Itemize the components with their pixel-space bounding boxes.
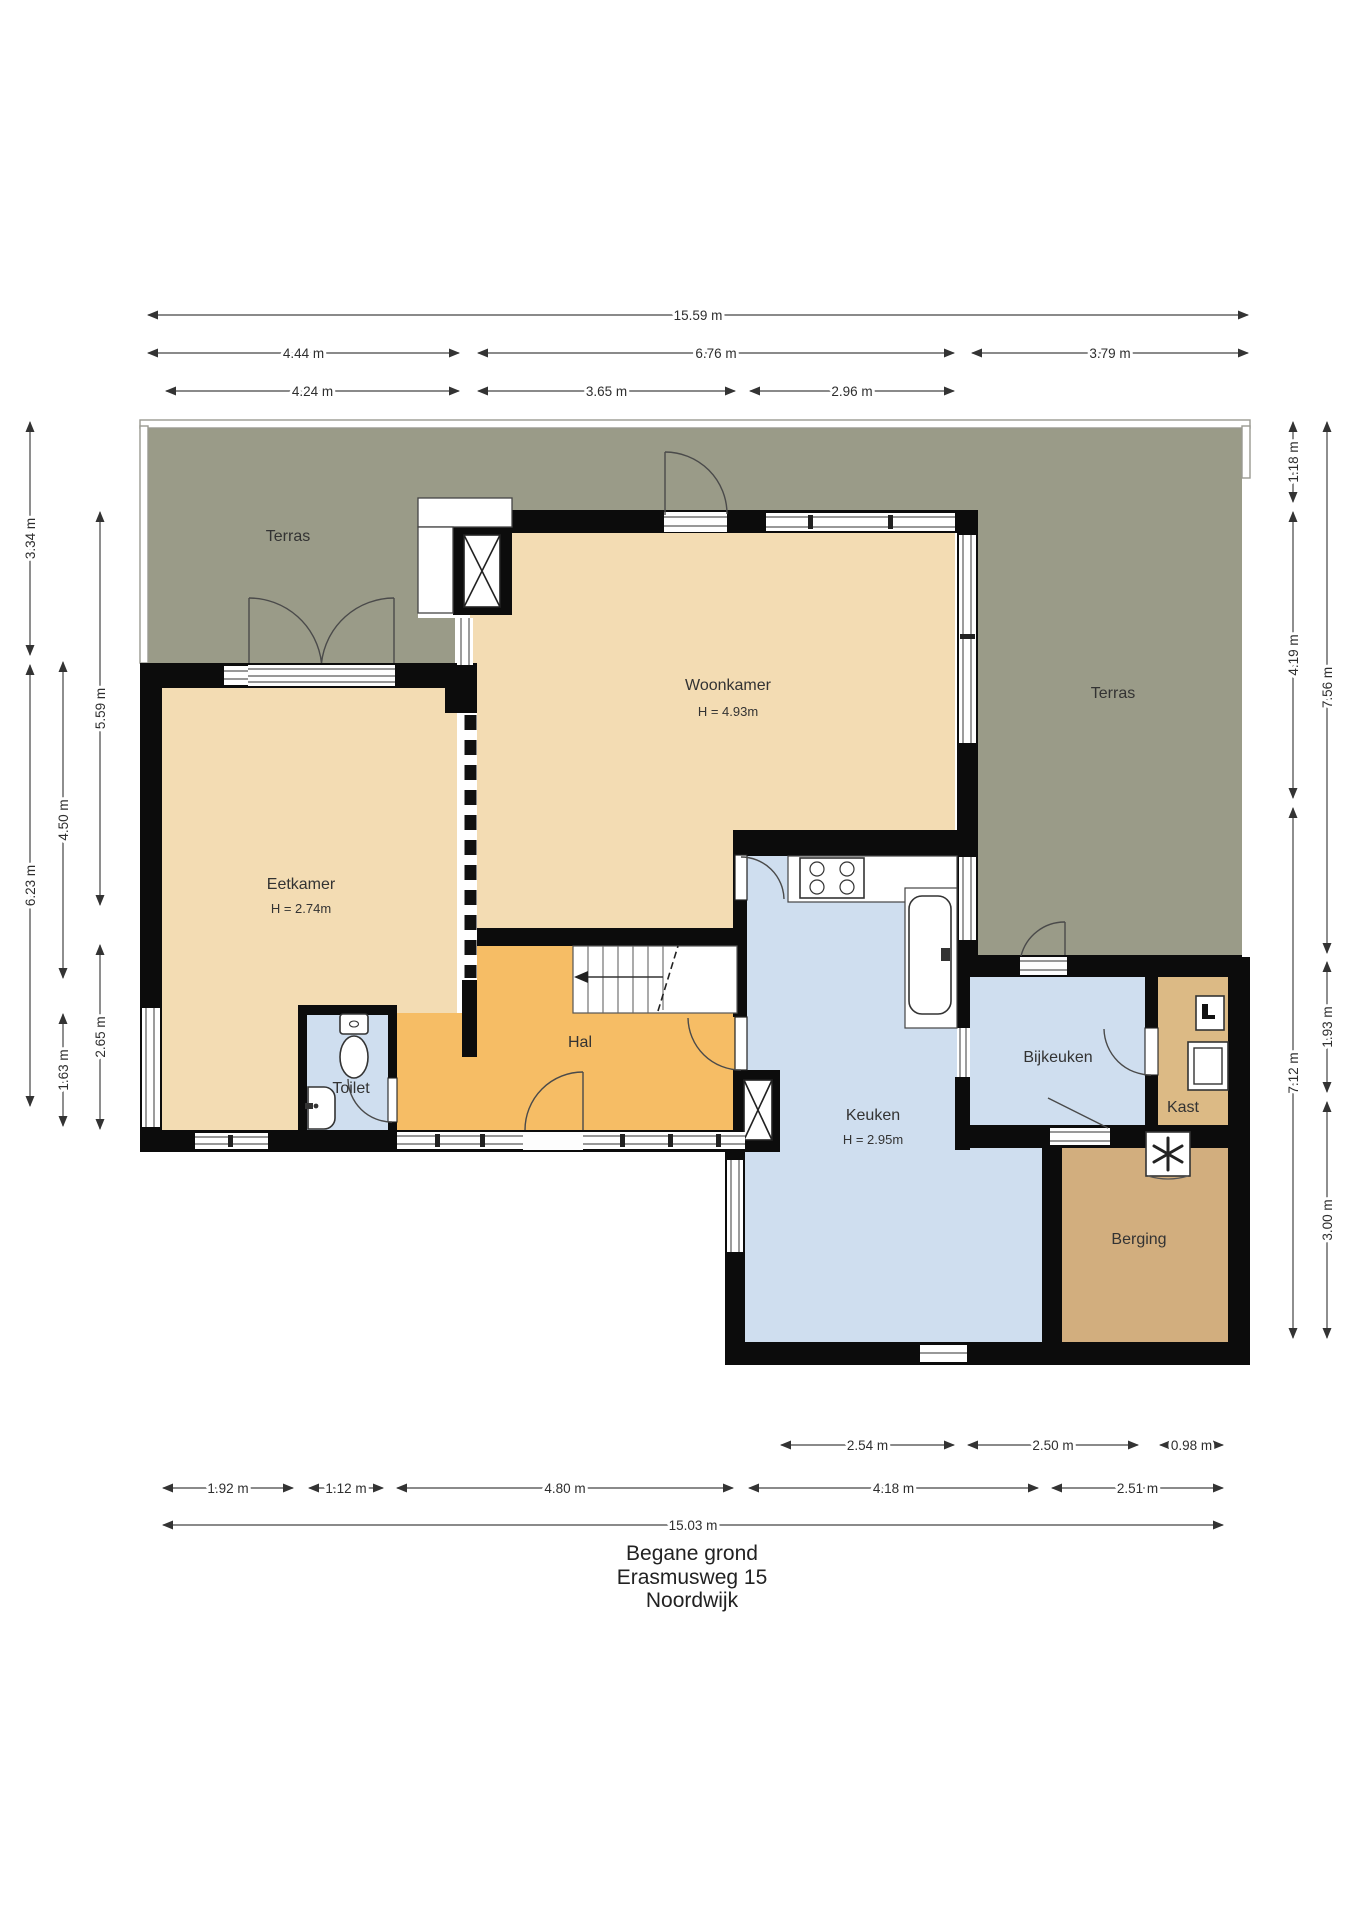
floorplan-page: { "title": { "line1": "Begane grond", "l… bbox=[0, 0, 1358, 1920]
stairs bbox=[573, 946, 737, 1013]
dimension-label: 1.18 m bbox=[1286, 441, 1301, 482]
chimney-block bbox=[418, 498, 512, 613]
dimension-label: 4.44 m bbox=[283, 346, 324, 361]
dimension-label: 2.96 m bbox=[831, 384, 872, 399]
dimension-label: 7.12 m bbox=[1286, 1052, 1301, 1093]
terrace-boundary-top bbox=[140, 420, 1250, 428]
room-label-hal: Hal bbox=[568, 1034, 592, 1051]
room-label-toilet: Toilet bbox=[332, 1080, 370, 1097]
toilet-bowl bbox=[340, 1036, 368, 1078]
room-label-berging: Berging bbox=[1111, 1231, 1166, 1248]
dimension-label: 15.59 m bbox=[674, 308, 723, 323]
terrace-boundary-right bbox=[1242, 426, 1250, 478]
dimension-label: 4.50 m bbox=[56, 799, 71, 840]
dimension-label: 2.50 m bbox=[1032, 1438, 1073, 1453]
plan-title: Begane grond Erasmusweg 15 Noordwijk bbox=[617, 1542, 768, 1612]
dimension-label: 4.19 m bbox=[1286, 634, 1301, 675]
title-street: Erasmusweg 15 bbox=[617, 1566, 768, 1589]
title-floor: Begane grond bbox=[626, 1542, 758, 1565]
dimension-label: 1.93 m bbox=[1320, 1006, 1335, 1047]
room-height-eetkamer: H = 2.74m bbox=[271, 901, 331, 916]
dimension-label: 3.79 m bbox=[1089, 346, 1130, 361]
dimension-label: 2.65 m bbox=[93, 1016, 108, 1057]
stove bbox=[800, 858, 864, 898]
dimension-label: 4.80 m bbox=[544, 1481, 585, 1496]
room-label-eetkamer: Eetkamer bbox=[267, 876, 336, 893]
dimension-label: 4.24 m bbox=[292, 384, 333, 399]
dimension-label: 15.03 m bbox=[669, 1518, 718, 1533]
dimension-label: 3.34 m bbox=[23, 518, 38, 559]
floorplan-drawing: TerrasTerrasWoonkamerH = 4.93mEetkamerH … bbox=[0, 0, 1358, 1920]
dimension-label: 1.92 m bbox=[207, 1481, 248, 1496]
dimension-label: 5.59 m bbox=[93, 688, 108, 729]
room-label-kast: Kast bbox=[1167, 1099, 1200, 1116]
dimension-label: 4.18 m bbox=[873, 1481, 914, 1496]
dimension-label: 7.56 m bbox=[1320, 667, 1335, 708]
room-height-keuken: H = 2.95m bbox=[843, 1132, 903, 1147]
dimension-label: 3.65 m bbox=[586, 384, 627, 399]
room-label-terras-left: Terras bbox=[266, 528, 310, 545]
title-city: Noordwijk bbox=[646, 1589, 739, 1612]
terrace-boundary-left bbox=[140, 426, 148, 663]
room-label-bijkeuken: Bijkeuken bbox=[1023, 1049, 1092, 1066]
berging-fan bbox=[1146, 1132, 1190, 1179]
column-hatched-keuken bbox=[744, 1080, 772, 1140]
room-label-woonkamer: Woonkamer bbox=[685, 677, 772, 694]
dimension-label: 3.00 m bbox=[1320, 1199, 1335, 1240]
kast-tap-box bbox=[1196, 996, 1224, 1030]
dimension-label: 0.98 m bbox=[1171, 1438, 1212, 1453]
room-height-woonkamer: H = 4.93m bbox=[698, 704, 758, 719]
dimension-label: 1.63 m bbox=[56, 1049, 71, 1090]
room-label-terras-right: Terras bbox=[1091, 685, 1135, 702]
room-label-keuken: Keuken bbox=[846, 1107, 900, 1124]
dimension-label: 6.23 m bbox=[23, 865, 38, 906]
dimension-label: 2.54 m bbox=[847, 1438, 888, 1453]
dimension-label: 2.51 m bbox=[1117, 1481, 1158, 1496]
dimension-label: 1.12 m bbox=[325, 1481, 366, 1496]
dimension-label: 6.76 m bbox=[695, 346, 736, 361]
